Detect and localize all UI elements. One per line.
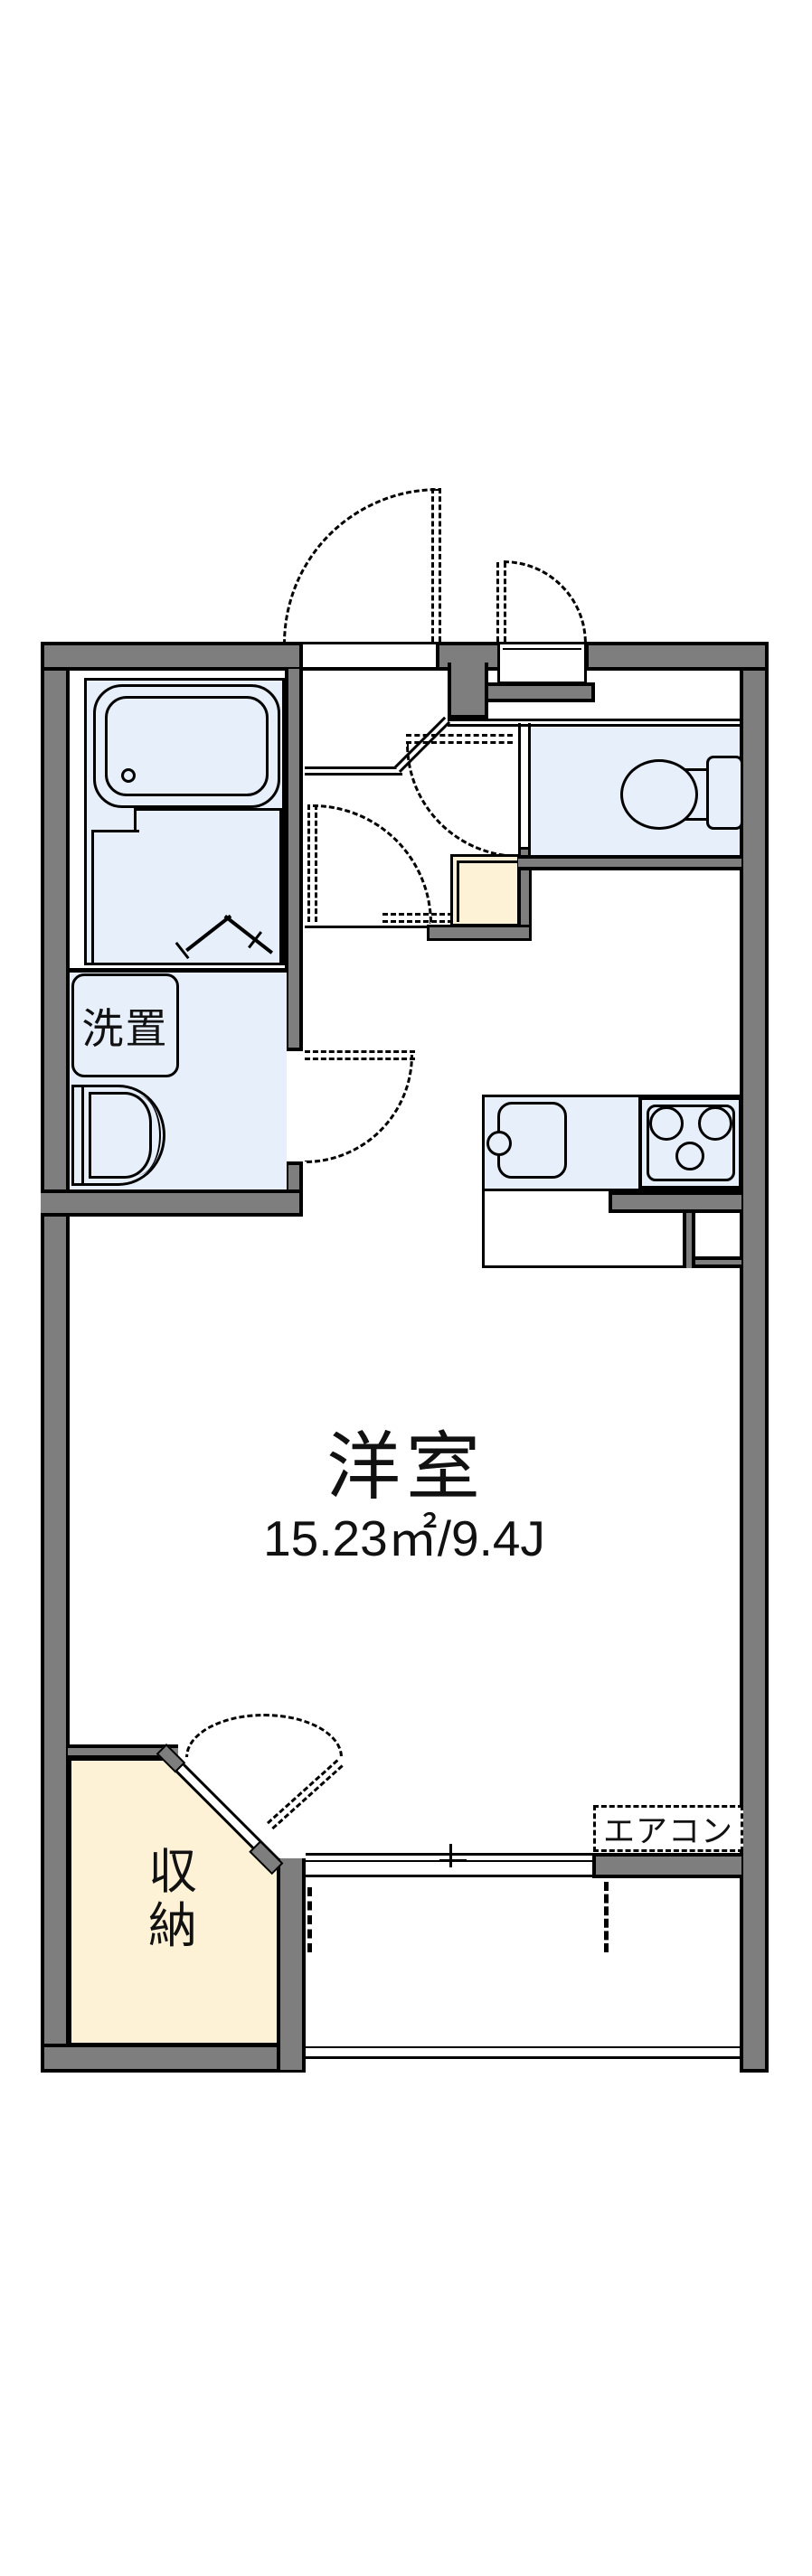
wall-kitchen-stub-band: [609, 1191, 741, 1213]
toilet-left-wall-line-a: [518, 723, 521, 855]
wall-bottom-left-outer: [41, 2044, 306, 2073]
wall-left-outer: [41, 642, 70, 2073]
toilet-tank: [706, 756, 743, 830]
wall-genkan-bottom-stub: [427, 925, 532, 941]
window-line-bottom: [306, 1875, 594, 1877]
entry-opening-bottom-line: [303, 667, 436, 671]
entry-recess-inner-line: [503, 648, 581, 650]
hall-door-swing-arc-left: [313, 804, 432, 924]
wall-toilet-bottom: [518, 855, 741, 870]
stove-burner-small: [675, 1142, 704, 1170]
wall-top-left-segment: [41, 642, 303, 671]
toilet-vestibule-line-lower: [448, 724, 741, 727]
storage-label: 収 納: [127, 1840, 218, 1958]
balcony-partition-dashed-left: [307, 1887, 312, 1952]
bathtub-drain-icon: [121, 768, 136, 783]
balcony-partition-dashed-right: [604, 1882, 609, 1952]
toilet-bowl: [620, 759, 698, 830]
vanity-back-line: [81, 1086, 84, 1184]
wall-washroom-bottom: [41, 1189, 303, 1217]
storage-label-char-2: 納: [148, 1899, 197, 1953]
hall-door-leaf-upper: [406, 734, 513, 744]
wall-bathroom-right: [285, 669, 303, 1051]
washroom-door-swing-arc: [305, 1055, 413, 1163]
kitchen-faucet-icon: [486, 1131, 512, 1156]
genkan-inner-line-top: [458, 860, 517, 863]
window-center-tick-vertical: [449, 1844, 452, 1867]
wall-storage-right: [277, 1858, 306, 2070]
wall-recess-left-column: [448, 663, 488, 719]
vestibule-line-lower: [305, 773, 402, 776]
storage-door-swing-arc: [185, 1714, 343, 1757]
genkan-step-line: [305, 926, 430, 928]
wall-pipe-space-bottom: [695, 1256, 741, 1268]
shower-floor-seam-patch: [139, 827, 279, 838]
storage-door-leaf: [267, 1759, 344, 1829]
stove-burner-left: [649, 1106, 684, 1141]
balcony-edge-line-lower: [306, 2056, 741, 2059]
wall-pipe-space-column: [683, 1213, 695, 1268]
entry-screen-door-swing-arc: [504, 560, 587, 644]
genkan-floor: [450, 854, 520, 926]
hall-door-swing-arc-right: [406, 744, 520, 858]
wall-recess-under-band: [488, 682, 595, 702]
washer-space-label: 洗置: [71, 973, 179, 1077]
balcony-edge-line-upper: [306, 2046, 741, 2048]
wall-top-right-segment: [585, 642, 769, 671]
aircon-box: エアコン: [593, 1805, 743, 1852]
entry-door-swing-arc: [283, 488, 439, 644]
genkan-inner-line-left: [457, 860, 459, 922]
shower-floor-main: [91, 830, 282, 965]
main-room-label: 洋室: [270, 1415, 542, 1505]
hall-door-leaf-lower: [382, 913, 453, 923]
wall-right-outer: [740, 642, 769, 2073]
kitchen-floor-line-horizontal: [482, 1265, 685, 1268]
floorplan-canvas: 洗置 洋室 15.23㎡/9.4J: [0, 0, 812, 2576]
window-center-tick-horizontal: [439, 1859, 467, 1862]
wall-window-right-segment: [592, 1853, 741, 1878]
stove-burner-right: [698, 1106, 732, 1141]
main-room-area-label: 15.23㎡/9.4J: [201, 1502, 608, 1565]
storage-label-char-1: 収: [148, 1845, 197, 1899]
storage-door-swing-arc-wrapper: [185, 1714, 348, 1757]
toilet-vestibule-line-upper: [448, 719, 741, 721]
kitchen-floor-line-vertical: [482, 1191, 485, 1268]
vestibule-line-upper: [305, 766, 402, 769]
